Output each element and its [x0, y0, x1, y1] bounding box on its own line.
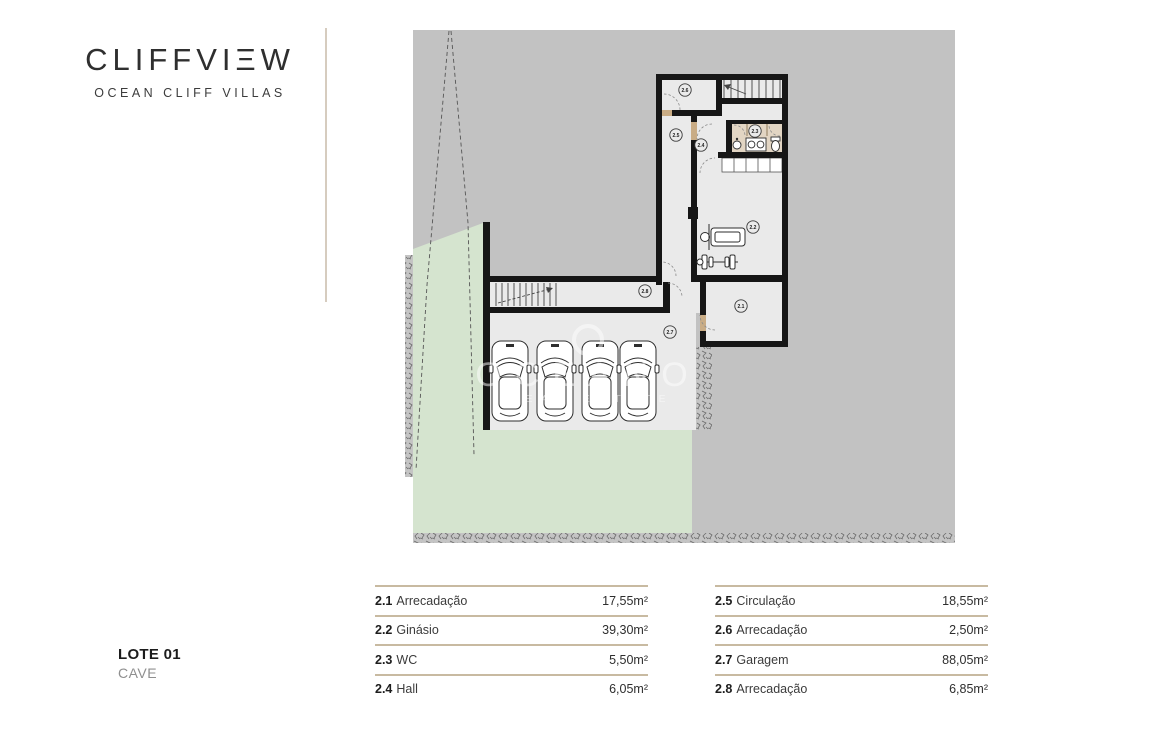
legend-room-name: 2.6Arrecadação	[715, 623, 807, 637]
legend-room-name: 2.4Hall	[375, 682, 418, 696]
legend-room-number: 2.7	[715, 653, 732, 667]
legend-row: 2.5Circulação18,55m²	[715, 585, 988, 615]
legend-room-area: 88,05m²	[942, 653, 988, 667]
lot-caption: LOTE 01 CAVE	[118, 646, 181, 681]
site-boundary-hatch-left	[405, 255, 413, 477]
brand-subtitle: OCEAN CLIFF VILLAS	[60, 86, 320, 100]
legend-room-area: 39,30m²	[602, 623, 648, 637]
legend-room-name: 2.3WC	[375, 653, 417, 667]
legend-room-number: 2.6	[715, 623, 732, 637]
closet-cells	[722, 158, 782, 172]
room-label-number: 2.7	[667, 330, 674, 336]
sink-icon	[733, 141, 741, 149]
watermark-line2: REAL ESTATE	[510, 394, 675, 405]
legend-room-area: 2,50m²	[949, 623, 988, 637]
room-label-number: 2.4	[698, 143, 705, 149]
brand-name-post: W	[261, 42, 295, 77]
legend-room-area: 6,85m²	[949, 682, 988, 696]
legend-table-left: 2.1Arrecadação17,55m²2.2Ginásio39,30m²2.…	[375, 585, 648, 703]
room-label-number: 2.3	[752, 129, 759, 135]
lot-title: LOTE 01	[118, 646, 181, 663]
legend-table-right: 2.5Circulação18,55m²2.6Arrecadação2,50m²…	[715, 585, 988, 703]
site-boundary-hatch-bottom	[413, 533, 955, 543]
brand-name-pre: CLIFFVI	[85, 42, 235, 77]
room-label-number: 2.5	[673, 133, 680, 139]
room-label-number: 2.1	[738, 304, 745, 310]
floor-plan-svg: OCEANO REAL ESTATE 2.12.22.32.42.52.62.7…	[405, 25, 960, 547]
legend-room-number: 2.2	[375, 623, 392, 637]
page: CLIFFVIΞW OCEAN CLIFF VILLAS	[0, 0, 1174, 735]
legend-room-number: 2.4	[375, 682, 392, 696]
lot-level: CAVE	[118, 665, 181, 681]
legend-room-area: 5,50m²	[609, 653, 648, 667]
brand-stylized-e-glyph: Ξ	[235, 42, 260, 77]
legend-room-number: 2.1	[375, 594, 392, 608]
legend-room-area: 6,05m²	[609, 682, 648, 696]
brand-name: CLIFFVIΞW	[60, 42, 320, 78]
legend-room-number: 2.3	[375, 653, 392, 667]
toilet-icon	[772, 141, 780, 152]
legend-row: 2.6Arrecadação2,50m²	[715, 615, 988, 645]
legend-row: 2.1Arrecadação17,55m²	[375, 585, 648, 615]
room-label-number: 2.8	[642, 289, 649, 295]
legend-room-area: 17,55m²	[602, 594, 648, 608]
legend-row: 2.7Garagem88,05m²	[715, 644, 988, 674]
room-label-number: 2.2	[750, 225, 757, 231]
legend-row: 2.3WC5,50m²	[375, 644, 648, 674]
brand-logo: CLIFFVIΞW OCEAN CLIFF VILLAS	[60, 42, 320, 100]
legend-room-number: 2.5	[715, 594, 732, 608]
watermark-line1: OCEANO	[475, 356, 700, 394]
legend-room-number: 2.8	[715, 682, 732, 696]
legend-room-name: 2.5Circulação	[715, 594, 795, 608]
floor-plan: OCEANO REAL ESTATE 2.12.22.32.42.52.62.7…	[405, 25, 960, 547]
legend-row: 2.4Hall6,05m²	[375, 674, 648, 704]
room-label-number: 2.6	[682, 88, 689, 94]
legend-room-area: 18,55m²	[942, 594, 988, 608]
legend-room-name: 2.1Arrecadação	[375, 594, 467, 608]
legend-room-name: 2.8Arrecadação	[715, 682, 807, 696]
legend-row: 2.8Arrecadação6,85m²	[715, 674, 988, 704]
legend-room-name: 2.7Garagem	[715, 653, 789, 667]
legend-room-name: 2.2Ginásio	[375, 623, 439, 637]
vertical-divider	[325, 28, 327, 302]
legend-row: 2.2Ginásio39,30m²	[375, 615, 648, 645]
